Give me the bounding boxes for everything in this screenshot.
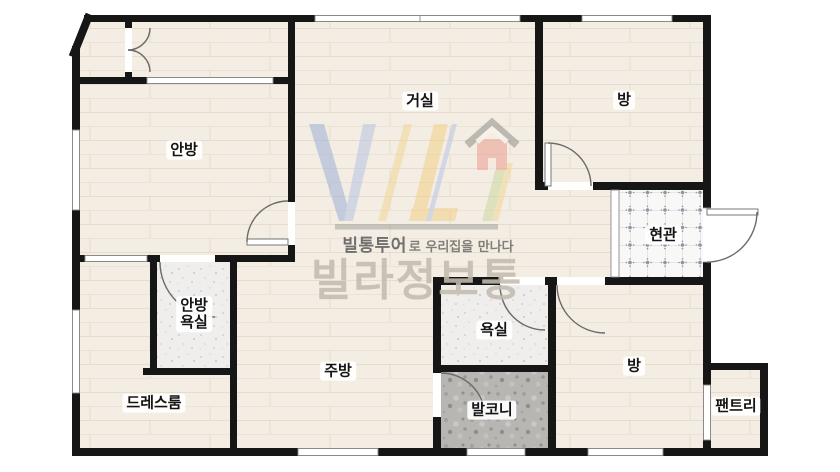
- window-dressroom-left: [73, 310, 80, 393]
- window-bedroom-top: [582, 16, 672, 22]
- room-label-master-bathroom: 안방 욕실: [176, 296, 212, 332]
- room-label-kitchen: 주방: [320, 362, 356, 381]
- door-front: [703, 208, 758, 262]
- room-label-living-room: 거실: [402, 92, 438, 111]
- room-label-dress-room: 드레스룸: [122, 394, 185, 413]
- opening-master-passage: [85, 256, 147, 262]
- logo-divider-bar: [335, 224, 498, 230]
- room-label-master-bathroom-line1: 안방: [180, 297, 208, 314]
- window-master-left: [73, 130, 80, 210]
- window-kitchen-bottom: [298, 449, 378, 456]
- window-bedroom-bottom: [588, 449, 663, 456]
- room-label-master-bedroom: 안방: [166, 141, 202, 160]
- floorplan-canvas: 안방 거실 방 현관 안방 욕실 드레스룸 주방 욕실 발코니 방 팬트리 빌통…: [0, 0, 840, 472]
- room-label-bathroom: 욕실: [476, 321, 512, 340]
- entrance-sill: [611, 190, 619, 277]
- window-living-top: [315, 16, 520, 22]
- window-balcony-bottom: [467, 449, 525, 456]
- window-strip: [147, 78, 273, 84]
- room-label-pantry: 팬트리: [711, 397, 760, 416]
- opening-pantry: [704, 385, 711, 440]
- room-label-bedroom-top: 방: [613, 91, 635, 110]
- room-label-master-bathroom-line2: 욕실: [180, 314, 208, 331]
- room-label-bedroom-bottom: 방: [623, 357, 645, 376]
- room-label-entrance: 현관: [645, 226, 681, 245]
- room-label-balcony: 발코니: [467, 401, 516, 420]
